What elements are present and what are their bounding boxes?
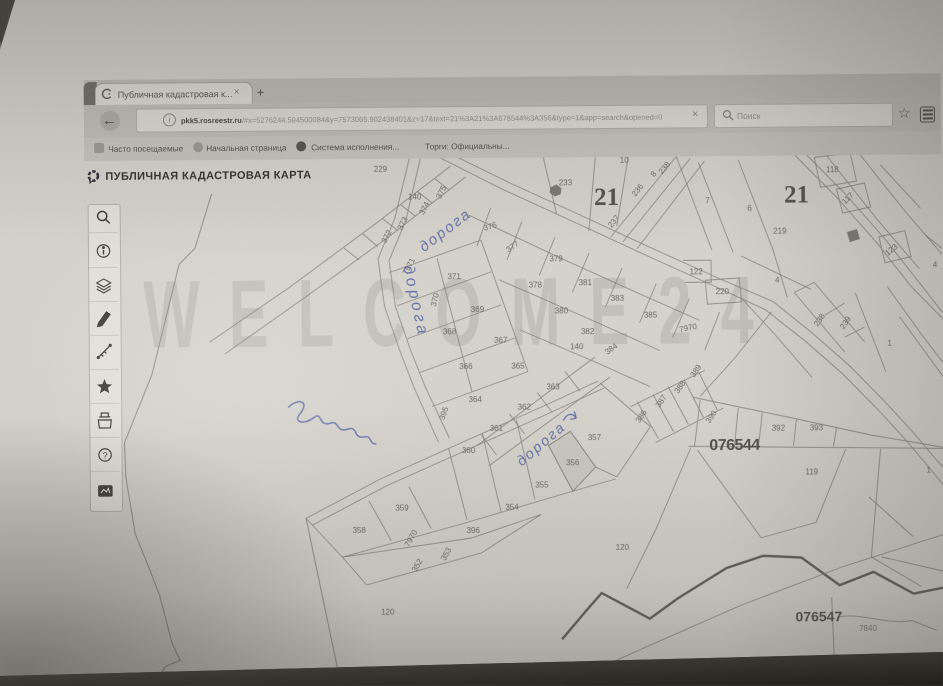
svg-text:382: 382: [581, 327, 595, 336]
svg-text:387: 387: [654, 393, 669, 410]
svg-text:4: 4: [775, 276, 780, 285]
svg-text:120: 120: [616, 543, 630, 552]
svg-text:1: 1: [887, 339, 892, 348]
svg-text:076547: 076547: [795, 608, 842, 624]
svg-text:238: 238: [657, 160, 673, 176]
svg-text:376: 376: [483, 220, 499, 232]
svg-text:377: 377: [504, 239, 521, 254]
svg-text:385: 385: [644, 311, 658, 320]
svg-text:355: 355: [535, 480, 549, 489]
svg-text:395: 395: [437, 405, 450, 421]
svg-text:367: 367: [494, 336, 508, 345]
svg-text:21: 21: [594, 184, 619, 211]
svg-text:229: 229: [374, 165, 388, 174]
svg-text:361: 361: [490, 424, 504, 433]
svg-text:10: 10: [620, 156, 630, 165]
svg-text:396: 396: [466, 526, 480, 535]
svg-text:384: 384: [603, 341, 620, 356]
svg-text:7: 7: [705, 196, 710, 205]
svg-text:362: 362: [517, 403, 531, 412]
svg-text:358: 358: [352, 526, 366, 535]
svg-text:?: ?: [103, 450, 108, 460]
svg-text:364: 364: [468, 395, 482, 404]
svg-text:392: 392: [772, 424, 786, 433]
svg-text:383: 383: [611, 294, 625, 303]
svg-text:360: 360: [462, 446, 476, 455]
svg-text:380: 380: [555, 306, 569, 315]
svg-text:238: 238: [812, 311, 827, 328]
svg-text:365: 365: [511, 362, 525, 371]
svg-text:219: 219: [773, 227, 787, 236]
svg-text:388: 388: [673, 378, 688, 395]
svg-text:7970: 7970: [403, 528, 420, 548]
svg-text:359: 359: [395, 504, 409, 513]
svg-text:366: 366: [459, 362, 473, 371]
svg-text:120: 120: [381, 608, 395, 617]
svg-text:381: 381: [579, 278, 593, 287]
svg-text:374: 374: [417, 200, 431, 216]
svg-text:386: 386: [634, 408, 649, 425]
svg-text:353: 353: [439, 546, 454, 563]
svg-text:6: 6: [747, 204, 752, 213]
svg-text:122: 122: [689, 267, 703, 276]
svg-text:357: 357: [588, 433, 602, 442]
svg-text:372: 372: [380, 228, 394, 244]
svg-text:393: 393: [810, 423, 824, 432]
svg-text:119: 119: [805, 467, 818, 476]
svg-text:7840: 7840: [859, 624, 877, 633]
svg-text:233: 233: [559, 178, 573, 187]
svg-text:220: 220: [716, 287, 730, 296]
svg-text:239: 239: [838, 314, 853, 331]
svg-text:21: 21: [784, 181, 809, 208]
svg-text:354: 354: [505, 503, 519, 512]
svg-text:356: 356: [566, 458, 580, 467]
svg-text:076544: 076544: [709, 437, 760, 454]
svg-text:368: 368: [443, 327, 457, 336]
svg-text:7970: 7970: [678, 321, 698, 334]
svg-text:236: 236: [630, 182, 646, 198]
svg-text:140: 140: [408, 192, 422, 201]
svg-text:1: 1: [926, 465, 931, 474]
svg-text:369: 369: [471, 305, 485, 314]
svg-text:371: 371: [447, 272, 461, 281]
svg-text:352: 352: [410, 557, 425, 574]
svg-text:373: 373: [395, 215, 409, 231]
svg-text:390: 390: [704, 408, 719, 425]
svg-text:363: 363: [546, 382, 560, 391]
svg-text:378: 378: [529, 281, 543, 290]
svg-text:140: 140: [570, 342, 584, 351]
svg-text:дорога: дорога: [399, 264, 431, 339]
svg-text:379: 379: [549, 254, 563, 263]
svg-text:4: 4: [933, 260, 938, 269]
svg-text:375: 375: [434, 184, 448, 200]
